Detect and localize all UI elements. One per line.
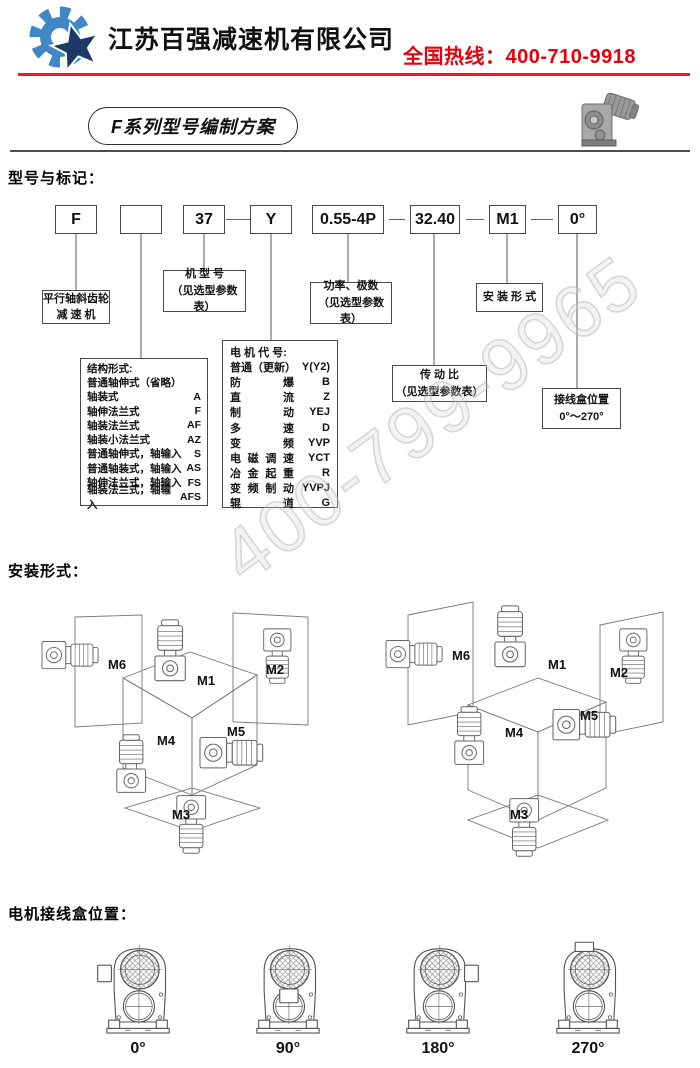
junction-view-270 [544, 938, 632, 1040]
code-box-power: 0.55-4P [312, 205, 384, 234]
code-box-structure [120, 205, 162, 234]
callout-reducer-type: 平行轴斜齿轮 减 速 机 [42, 290, 110, 324]
angle-label-270: 270° [544, 1040, 632, 1058]
code-box-ratio: 32.40 [410, 205, 460, 234]
mounting-diagram-left: M6 M1 M2 M4 M5 M3 [20, 593, 350, 865]
mounting-label-m6: M6 [108, 657, 126, 672]
junction-box-top [575, 942, 593, 951]
callout-mounting-form: 安 装 形 式 [476, 283, 543, 312]
angle-label-90: 90° [244, 1040, 332, 1058]
mounting-diagram-right: M6 M1 M2 M4 M5 M3 [368, 590, 688, 882]
hotline-number: 全国热线：400-710-9918 [403, 40, 636, 69]
motor-code-row: 冶金起重R [230, 466, 330, 481]
motor-code-row: 防爆B [230, 374, 330, 389]
structure-row: 普通轴装式，轴输入AS [87, 461, 201, 475]
structure-form-list: 结构形式: 普通轴伸式（省略） 轴装式A 轴伸法兰式F 轴装法兰式AF 轴装小法… [80, 358, 208, 506]
motor-code-row: 变频制动YVPJ [230, 481, 330, 496]
structure-row: 轴装法兰式AF [87, 418, 201, 432]
junction-box-left [98, 965, 112, 982]
motor-code-row: 变频YVP [230, 435, 330, 450]
mounting-label-m3: M3 [510, 807, 528, 822]
mounting-label-m5: M5 [580, 708, 598, 723]
motor-code-row: 制动YEJ [230, 405, 330, 420]
structure-row: 轴伸法兰式F [87, 404, 201, 418]
code-box-series: F [55, 205, 97, 234]
code-box-mounting: M1 [489, 205, 526, 234]
mounting-heading: 安装形式： [8, 560, 88, 581]
mounting-label-m6: M6 [452, 648, 470, 663]
junction-box-right [465, 965, 479, 982]
mounting-label-m1: M1 [548, 657, 566, 672]
angle-label-0: 0° [94, 1040, 182, 1058]
series-title-badge: F系列型号编制方案 [88, 107, 298, 145]
motor-code-row: 直流Z [230, 390, 330, 405]
motor-code-list: 电 机 代 号: 普通（更新）Y(Y2) 防爆B 直流Z 制动YEJ 多速D 变… [222, 340, 338, 508]
code-box-angle: 0° [558, 205, 597, 234]
motor-code-row: 辊道G [230, 496, 330, 511]
motor-code-row: 多速D [230, 420, 330, 435]
mounting-label-m1: M1 [197, 673, 215, 688]
company-name: 江苏百强减速机有限公司 [108, 20, 394, 56]
gear-reducer-photo [570, 88, 644, 150]
motor-code-row: 普通（更新）Y(Y2) [230, 359, 330, 374]
mounting-label-m5: M5 [227, 724, 245, 739]
structure-row: 轴装式A [87, 390, 201, 404]
mounting-label-m4: M4 [505, 725, 524, 740]
mounting-label-m2: M2 [266, 662, 284, 677]
code-box-size: 37 [183, 205, 225, 234]
callout-frame-size: 机 型 号 （见选型参数表） [163, 270, 246, 312]
code-box-motor: Y [250, 205, 292, 234]
motor-code-row: 电磁调速YCT [230, 450, 330, 465]
company-logo-gear-star-icon [20, 3, 108, 73]
mounting-label-m3: M3 [172, 807, 190, 822]
section-divider [10, 150, 690, 152]
callout-ratio: 传 动 比 （见选型参数表） [392, 365, 487, 402]
structure-row: 普通轴伸式，轴输入S [87, 447, 201, 461]
callout-power-poles: 功率、极数 （见选型参数表） [310, 282, 392, 324]
catalog-page: 江苏百强减速机有限公司 全国热线：400-710-9918 F系列型号编制方案 … [0, 0, 700, 1068]
junction-view-90 [244, 938, 332, 1040]
structure-row: 普通轴伸式（省略） [87, 375, 201, 389]
angle-label-180: 180° [394, 1040, 482, 1058]
junction-heading: 电机接线盒位置： [8, 903, 136, 924]
mounting-label-m2: M2 [610, 665, 628, 680]
structure-row: 轴装法兰式，轴输入AFS [87, 490, 201, 504]
callout-junction-position: 接线盒位置 0°～270° [542, 388, 621, 429]
junction-view-180 [394, 938, 482, 1040]
junction-box-bottom [280, 989, 298, 1003]
mounting-label-m4: M4 [157, 733, 176, 748]
junction-view-0 [94, 938, 182, 1040]
structure-row: 轴装小法兰式AZ [87, 432, 201, 446]
red-divider [18, 73, 690, 76]
